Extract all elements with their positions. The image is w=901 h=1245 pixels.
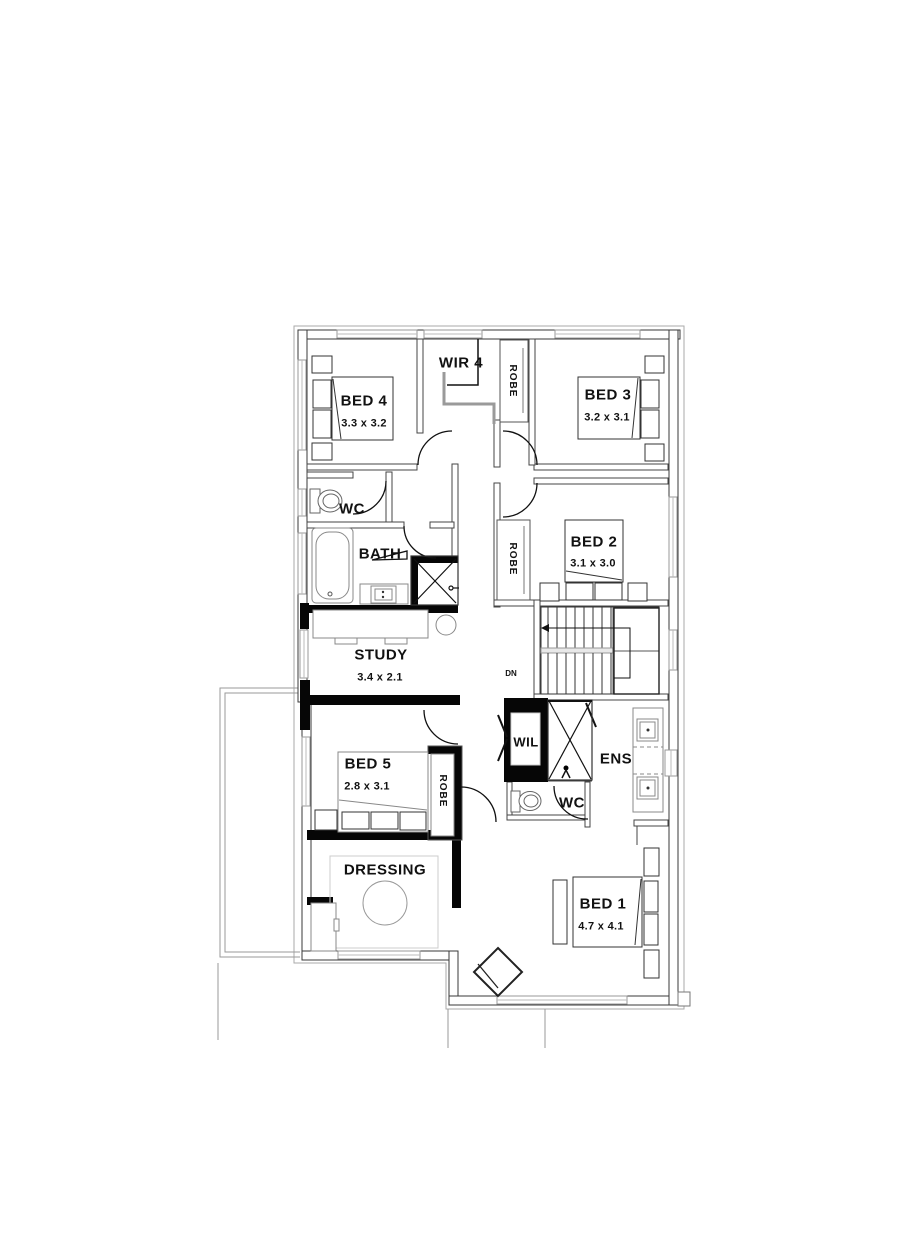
floor-plan-drawing <box>0 0 901 1245</box>
study-label: STUDY <box>354 648 407 663</box>
bath-vanity <box>360 584 408 604</box>
floor-plan-canvas: BED 4 3.3 x 3.2 WIR 4 ROBE BED 3 3.2 x 3… <box>0 0 901 1245</box>
wc-upper-label: WC <box>339 502 365 517</box>
bathtub <box>312 528 353 603</box>
bed3-label: BED 3 <box>585 388 632 403</box>
bed1-label: BED 1 <box>580 897 627 912</box>
bath-door-arc <box>404 526 436 558</box>
robe-top-label: ROBE <box>507 365 517 398</box>
bath-label: BATH <box>359 547 402 562</box>
staircase <box>541 607 659 694</box>
balcony-outline <box>220 688 300 957</box>
bed4-label: BED 4 <box>341 394 388 409</box>
study-furniture <box>313 610 456 644</box>
bed5-dims: 2.8 x 3.1 <box>344 782 390 793</box>
bed2-door-arc <box>503 483 537 517</box>
bed1-chair <box>474 948 522 996</box>
bed5-label: BED 5 <box>345 757 392 772</box>
wil-label: WIL <box>513 736 538 749</box>
bed2-label: BED 2 <box>571 535 618 550</box>
stairs-dn-label: DN <box>505 670 517 678</box>
bath-shower <box>411 556 459 605</box>
bed4-dims: 3.3 x 3.2 <box>341 419 387 430</box>
robe-bed2-label: ROBE <box>507 543 517 576</box>
bed4-door-arc <box>418 431 452 465</box>
wc-upper-toilet <box>310 489 342 513</box>
ens-wc-toilet <box>511 791 541 812</box>
bed2-dims: 3.1 x 3.0 <box>570 559 616 570</box>
bed1-dims: 4.7 x 4.1 <box>578 922 624 933</box>
dressing-label: DRESSING <box>344 863 426 878</box>
robe-bed5-label: ROBE <box>437 775 447 808</box>
ens-shower <box>548 700 592 780</box>
wc-ens-label: WC <box>559 796 585 811</box>
shower-tap-icon <box>449 586 453 590</box>
wir4-label: WIR 4 <box>439 356 483 371</box>
bed5-door-arc <box>424 710 458 744</box>
ens-vanity <box>633 708 663 812</box>
bed3-furniture <box>578 356 664 461</box>
wir4-walls <box>444 339 494 424</box>
hall-door-arc <box>461 787 496 822</box>
ens-label: ENS <box>600 752 632 767</box>
bed1-furniture <box>553 848 659 978</box>
bed3-dims: 3.2 x 3.1 <box>584 413 630 424</box>
study-dims: 3.4 x 2.1 <box>357 673 403 684</box>
